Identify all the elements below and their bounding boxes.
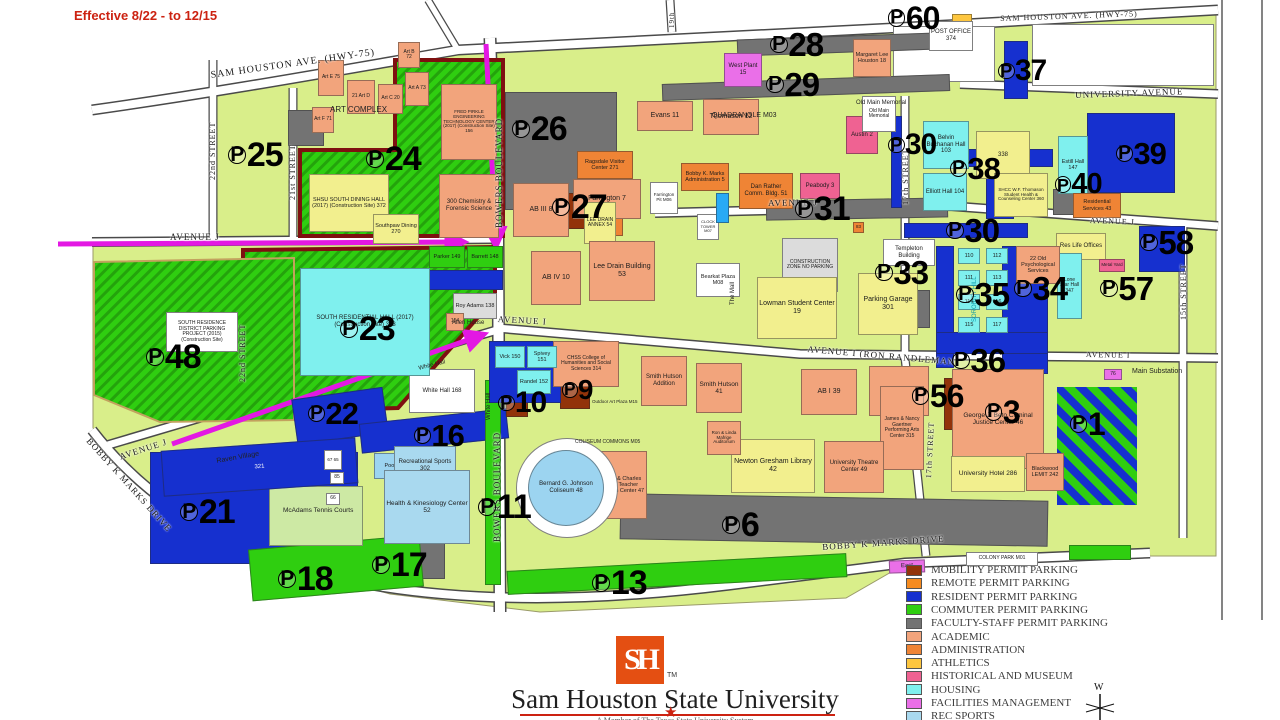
building-label: Lee Drain Building 53 xyxy=(590,262,654,279)
parking-icon: P xyxy=(1070,415,1087,432)
area-label: QUADRANGLE M03 xyxy=(712,112,777,119)
coliseum: Bernard G. Johnson Coliseum 48 xyxy=(528,450,604,526)
parking-marker-p30: P30 xyxy=(888,130,936,160)
building-label: 21 Art D xyxy=(351,93,371,101)
tennis-courts xyxy=(269,486,363,546)
building: FRED PIRKLE ENGINEERING TECHNOLOGY CENTE… xyxy=(441,84,497,160)
building-label: Farrington Pit M06 xyxy=(651,192,677,204)
building-label: 76 xyxy=(1109,371,1117,379)
parking-marker-p22: P22 xyxy=(308,398,358,429)
building-label: Art A 73 xyxy=(407,85,427,93)
building-label: 85 xyxy=(333,474,341,482)
parking-marker-p36: P36 xyxy=(952,344,1005,377)
legend-item: MOBILITY PERMIT PARKING xyxy=(906,564,1078,576)
building: Smith Hutson Addition xyxy=(641,356,687,406)
parking-marker-p24: P24 xyxy=(366,142,421,176)
building-label: 300 Chemistry & Forensic Science xyxy=(440,198,498,213)
legend-swatch xyxy=(906,578,922,589)
building-label: Bobby K. Marks Administration 5 xyxy=(682,170,728,184)
parking-lot-number: 1 xyxy=(1088,408,1105,440)
parking-lot-number: 23 xyxy=(359,312,395,346)
building-label: Barrett 148 xyxy=(470,253,499,261)
parking-marker-p27: P27 xyxy=(552,190,607,224)
parking-lot-number: 39 xyxy=(1133,138,1165,169)
parking-icon: P xyxy=(1055,176,1071,192)
building-label: White Hall 168 xyxy=(421,387,462,396)
building-label: 321 xyxy=(253,462,266,471)
building: Margaret Lee Houston 18 xyxy=(853,39,891,77)
label-box: 67 65 xyxy=(324,450,342,470)
parking-marker-p34: P34 xyxy=(1014,272,1067,305)
building-label: Art F 71 xyxy=(313,116,333,124)
parking-lot-number: 60 xyxy=(906,2,940,34)
parking-icon: P xyxy=(888,9,905,26)
building: AB I 39 xyxy=(801,369,857,415)
building-label: Evans 11 xyxy=(650,111,681,121)
building-label: Parking Garage 301 xyxy=(859,295,917,312)
parking-icon: P xyxy=(592,574,610,592)
building-label: Smith Hutson 41 xyxy=(697,380,741,396)
building: Art B 72 xyxy=(398,42,420,68)
parking-icon: P xyxy=(888,137,905,154)
parking-marker-p25: P25 xyxy=(228,138,283,172)
building-label: FRED PIRKLE ENGINEERING TECHNOLOGY CENTE… xyxy=(442,109,496,136)
parking-icon: P xyxy=(950,160,967,177)
building-label: Health & Kinesiology Center 52 xyxy=(385,499,469,515)
building-label: Randel 152 xyxy=(519,378,549,386)
building: University Theatre Center 49 xyxy=(824,441,884,493)
university-logo: SH xyxy=(616,636,664,684)
building: AB IV 10 xyxy=(531,251,581,305)
parking-marker-p28: P28 xyxy=(770,28,823,61)
parking-lot-number: 26 xyxy=(531,112,567,146)
parking-icon: P xyxy=(552,198,570,216)
parking-marker-p9: P9 xyxy=(562,376,592,404)
parking-lot-number: 57 xyxy=(1118,272,1153,305)
legend-item: COMMUTER PERMIT PARKING xyxy=(906,604,1088,616)
parking-marker-p1: P1 xyxy=(1070,408,1105,440)
building: Evans 11 xyxy=(637,101,693,131)
parking-marker-p33: P33 xyxy=(875,256,928,289)
legend-swatch xyxy=(906,658,922,669)
parking-icon: P xyxy=(770,36,788,54)
legend-swatch xyxy=(906,604,922,615)
street-label: AVENUE J xyxy=(1090,216,1135,227)
parking-icon: P xyxy=(1014,280,1032,298)
legend-item: RESIDENT PERMIT PARKING xyxy=(906,591,1078,603)
building: Southpaw Dining 270 xyxy=(373,214,419,244)
building-label: West Plant 15 xyxy=(725,62,761,77)
building-label: Residential Services 43 xyxy=(1074,198,1120,212)
parking-marker-p3: P3 xyxy=(985,396,1020,428)
lot-parker xyxy=(429,270,503,290)
parking-lot-number: 22 xyxy=(325,398,357,429)
building-label: 115 xyxy=(964,321,975,329)
street-label: 22nd STREET xyxy=(208,122,217,180)
effective-date-label: Effective 8/22 - to 12/15 xyxy=(74,8,217,23)
street-label: AVENUE J xyxy=(170,232,220,242)
parking-marker-p11: P11 xyxy=(478,490,531,524)
parking-lot-number: 13 xyxy=(611,566,647,600)
building-label: University Theatre Center 49 xyxy=(825,459,883,474)
street-label: 15th STREET xyxy=(1179,263,1188,320)
building: SHCC W.F. Thomason Student Health & Coun… xyxy=(994,173,1048,217)
legend-label: ATHLETICS xyxy=(931,657,990,669)
street-label: 19th xyxy=(668,12,676,28)
parking-marker-p58: P58 xyxy=(1140,226,1193,259)
building-label: COLONY PARK M01 xyxy=(978,555,1027,563)
building: Ragsdale Visitor Center 271 xyxy=(577,151,633,179)
parking-icon: P xyxy=(946,222,964,240)
substation: 76 xyxy=(1104,369,1122,380)
parking-icon: P xyxy=(985,403,1002,420)
strip-green-right xyxy=(1069,545,1131,560)
parking-marker-p56: P56 xyxy=(912,380,963,412)
parking-icon: P xyxy=(1116,145,1133,162)
kiosk xyxy=(716,193,729,223)
parking-icon: P xyxy=(562,382,578,398)
parking-lot-number: 36 xyxy=(970,344,1005,377)
legend-label: RESIDENT PERMIT PARKING xyxy=(931,591,1078,603)
building: West Plant 15 xyxy=(724,53,762,87)
parking-marker-p31: P31 xyxy=(795,192,850,226)
parking-lot-number: 18 xyxy=(297,562,333,596)
parking-marker-p6: P6 xyxy=(722,508,759,542)
building: 117 xyxy=(986,317,1008,333)
parking-lot-number: 6 xyxy=(741,508,759,542)
building: 112 xyxy=(986,248,1008,264)
parking-icon: P xyxy=(180,503,198,521)
building: Vick 150 xyxy=(495,346,525,368)
empty-block-ne xyxy=(1032,24,1214,86)
building-label: Blackwood LEMIT 242 xyxy=(1027,465,1063,479)
building-label: Smith Hutson Addition xyxy=(642,373,686,388)
legend-label: HISTORICAL AND MUSEUM xyxy=(931,670,1073,682)
building-label: Southpaw Dining 270 xyxy=(374,222,418,236)
parking-lot-number: 31 xyxy=(814,192,850,226)
parking-marker-p16: P16 xyxy=(414,420,464,451)
building-label: Parker 149 xyxy=(433,253,462,261)
legend-swatch xyxy=(906,565,922,576)
building: 300 Chemistry & Forensic Science xyxy=(439,174,499,238)
parking-marker-p35: P35 xyxy=(956,278,1009,311)
building-label: Spivey 151 xyxy=(528,350,556,364)
building-label: Vick 150 xyxy=(499,353,522,361)
parking-lot-number: 27 xyxy=(571,190,607,224)
legend-item: REMOTE PERMIT PARKING xyxy=(906,577,1070,589)
parking-lot-number: 16 xyxy=(431,420,463,451)
building-label: Old Main Memorial xyxy=(863,108,895,121)
building-label: Ragsdale Visitor Center 271 xyxy=(578,158,632,172)
parking-icon: P xyxy=(372,556,390,574)
parking-lot-number: 40 xyxy=(1071,170,1101,199)
building: Newton Gresham Library 42 xyxy=(731,439,815,493)
parking-lot-number: 3 xyxy=(1003,396,1020,428)
building-label: AB III 8 xyxy=(529,205,554,215)
parking-marker-p29: P29 xyxy=(766,68,819,101)
label-box: 66 xyxy=(326,493,340,505)
parking-marker-p18: P18 xyxy=(278,562,333,596)
building-label: 67 65 xyxy=(326,457,339,464)
building-label: 110 xyxy=(964,252,975,260)
building-label: Bernard G. Johnson Coliseum 48 xyxy=(529,480,603,495)
parking-icon: P xyxy=(478,498,496,516)
building: Smith Hutson 41 xyxy=(696,363,742,413)
compass-w-label: W xyxy=(1094,682,1103,693)
building-label: University Hotel 286 xyxy=(958,469,1018,478)
legend-swatch xyxy=(906,671,922,682)
parking-lot-number: 29 xyxy=(784,68,819,101)
parking-marker-p60: P60 xyxy=(888,2,939,34)
legend-label: ADMINISTRATION xyxy=(931,644,1025,656)
parking-icon: P xyxy=(795,200,813,218)
parking-lot-number: 21 xyxy=(199,495,235,529)
building: Health & Kinesiology Center 52 xyxy=(384,470,470,544)
building-label: Art B 72 xyxy=(399,49,419,62)
parking-marker-p57: P57 xyxy=(1100,272,1153,305)
parking-icon: P xyxy=(146,348,164,366)
parking-icon: P xyxy=(498,395,515,412)
parking-lot-number: 35 xyxy=(974,278,1009,311)
parking-icon: P xyxy=(228,146,246,164)
parking-marker-p23: P23 xyxy=(340,312,395,346)
street-label: 22nd STREET xyxy=(238,324,247,382)
parking-marker-p26: P26 xyxy=(512,112,567,146)
parking-lot-number: 24 xyxy=(385,142,421,176)
legend-item: FACULTY-STAFF PERMIT PARKING xyxy=(906,617,1108,629)
building-label: Lowman Student Center 19 xyxy=(758,299,836,316)
legend-item: ADMINISTRATION xyxy=(906,644,1025,656)
legend-label: ACADEMIC xyxy=(931,631,990,643)
lot-p6 xyxy=(620,493,1049,546)
building: 83 xyxy=(853,222,864,233)
parking-icon: P xyxy=(278,570,296,588)
building-label: Roy Adams 138 xyxy=(455,302,496,310)
area-label: The Mall xyxy=(730,282,736,305)
parking-lot-number: 10 xyxy=(515,388,546,418)
area-label: McAdams Tennis Courts xyxy=(283,508,353,515)
area-label: Main Substation xyxy=(1132,368,1182,375)
parking-icon: P xyxy=(414,427,431,444)
legend-item: ACADEMIC xyxy=(906,631,990,643)
parking-lot-number: 33 xyxy=(893,256,928,289)
legend-swatch xyxy=(906,644,922,655)
parking-lot-number: 56 xyxy=(930,380,964,412)
area-label: White Hall xyxy=(486,393,492,420)
parking-marker-p48: P48 xyxy=(146,340,201,374)
lot-p1 xyxy=(1057,387,1137,505)
legend-label: MOBILITY PERMIT PARKING xyxy=(931,564,1078,576)
legend-label: REMOTE PERMIT PARKING xyxy=(931,577,1070,589)
legend-item: ATHLETICS xyxy=(906,657,990,669)
parking-lot-number: 30 xyxy=(964,214,999,247)
legend-swatch xyxy=(906,591,922,602)
building: Barrett 148 xyxy=(467,246,503,268)
street-label: BOWERS BOULEVARD xyxy=(494,118,504,228)
parking-lot-number: 11 xyxy=(497,490,531,524)
building-label: CHSS College of Humanities and Social Sc… xyxy=(554,355,618,374)
legend-label: COMMUTER PERMIT PARKING xyxy=(931,604,1088,616)
building: 110 xyxy=(958,248,980,264)
building-label: Dan Rather Comm. Bldg. 51 xyxy=(740,183,792,198)
parking-icon: P xyxy=(766,76,784,94)
parking-icon: P xyxy=(512,120,530,138)
parking-icon: P xyxy=(722,516,740,534)
building-label: SHCC W.F. Thomason Student Health & Coun… xyxy=(995,187,1047,204)
building: Art A 73 xyxy=(405,72,429,106)
legend-label: FACILITIES MANAGEMENT xyxy=(931,697,1071,709)
area-label: Allen House xyxy=(452,320,484,326)
building-label: 117 xyxy=(992,321,1003,329)
compass-icon: W xyxy=(1080,682,1120,720)
building-label: 83 xyxy=(855,224,862,231)
parking-lot-number: 30 xyxy=(905,130,936,160)
area-label: Outdoor Art Plaza M15 xyxy=(592,400,638,405)
building: Ron & Linda Mafrige Auditorium xyxy=(707,421,741,455)
building-label: CLOCK TOWER M07 xyxy=(698,219,718,234)
parking-lot-number: 17 xyxy=(391,548,427,582)
street-label: 21st STREET xyxy=(288,144,297,200)
parking-lot-number: 9 xyxy=(578,376,593,404)
building-label: Art C 20 xyxy=(380,95,400,103)
building-label: Elliott Hall 104 xyxy=(925,188,965,197)
legend-item: HISTORICAL AND MUSEUM xyxy=(906,670,1073,682)
parking-icon: P xyxy=(952,352,970,370)
parking-icon: P xyxy=(912,387,929,404)
campus-parking-map: Art E 7521 Art DArt C 20Art A 73Art B 72… xyxy=(0,0,1280,720)
building: Blackwood LEMIT 242 xyxy=(1026,453,1064,491)
parking-lot-number: 28 xyxy=(788,28,823,61)
building: Lowman Student Center 19 xyxy=(757,277,837,339)
building-label: 112 xyxy=(992,252,1003,260)
area-label: Old Main Memorial xyxy=(856,100,906,106)
parking-marker-p21: P21 xyxy=(180,495,235,529)
building-label: 66 xyxy=(329,495,337,503)
building-label: Ron & Linda Mafrige Auditorium xyxy=(708,430,740,447)
parking-lot-number: 48 xyxy=(165,340,201,374)
legend-swatch xyxy=(906,631,922,642)
parking-icon: P xyxy=(308,405,325,422)
parking-marker-p13: P13 xyxy=(592,566,647,600)
parking-icon: P xyxy=(340,320,358,338)
building-label: AB I 39 xyxy=(817,387,842,397)
parking-marker-p17: P17 xyxy=(372,548,427,582)
label-box: 85 xyxy=(330,472,344,484)
building: Lee Drain Building 53 xyxy=(589,241,655,301)
building: Farrington Pit M06 xyxy=(650,182,678,214)
building-label: Newton Gresham Library 42 xyxy=(732,457,814,474)
parking-marker-p37: P37 xyxy=(998,56,1046,86)
building: University Hotel 286 xyxy=(951,456,1025,492)
legend-swatch xyxy=(906,618,922,629)
building-label: Art E 75 xyxy=(321,74,341,82)
parking-marker-p38: P38 xyxy=(950,153,1000,184)
building-label: Metal Yard xyxy=(1100,262,1123,269)
area-label: ART COMPLEX xyxy=(330,106,387,114)
university-tagline: A Member of The Texas State University S… xyxy=(500,716,850,720)
street-label: AVENUE I xyxy=(1086,350,1131,360)
parking-marker-p30: P30 xyxy=(946,214,999,247)
building-label: Peabody 3 xyxy=(805,182,836,191)
parking-icon: P xyxy=(366,150,384,168)
building-label: Margaret Lee Houston 18 xyxy=(854,51,890,65)
parking-lot-number: 34 xyxy=(1032,272,1067,305)
legend-label: FACULTY-STAFF PERMIT PARKING xyxy=(931,617,1108,629)
parking-icon: P xyxy=(1100,280,1118,298)
area-label: COLISEUM COMMONS M05 xyxy=(575,440,640,445)
building: Spivey 151 xyxy=(527,346,557,368)
trademark-symbol: TM xyxy=(667,672,677,679)
building-label: AB IV 10 xyxy=(541,273,571,283)
parking-marker-p39: P39 xyxy=(1116,138,1166,169)
building-label: James & Nancy Gaertner Performing Arts C… xyxy=(881,416,923,440)
building-label: Res Life Offices xyxy=(1059,242,1103,251)
parking-icon: P xyxy=(956,286,974,304)
building-label: SHSU SOUTH DINING HALL (2017) (Construct… xyxy=(310,196,388,210)
building: Art E 75 xyxy=(318,60,344,96)
parking-lot-number: 38 xyxy=(967,153,999,184)
building-label: CONSTRUCTION ZONE NO PARKING xyxy=(783,259,837,272)
parking-icon: P xyxy=(998,63,1015,80)
parking-lot-number: 58 xyxy=(1158,226,1193,259)
parking-marker-p10: P10 xyxy=(498,388,546,418)
building: Parker 149 xyxy=(429,246,465,268)
parking-icon: P xyxy=(1140,234,1158,252)
parking-lot-number: 25 xyxy=(247,138,283,172)
parking-marker-p40: P40 xyxy=(1055,170,1102,199)
parking-icon: P xyxy=(875,264,893,282)
building: Bobby K. Marks Administration 5 xyxy=(681,163,729,191)
parking-lot-number: 37 xyxy=(1015,56,1046,86)
